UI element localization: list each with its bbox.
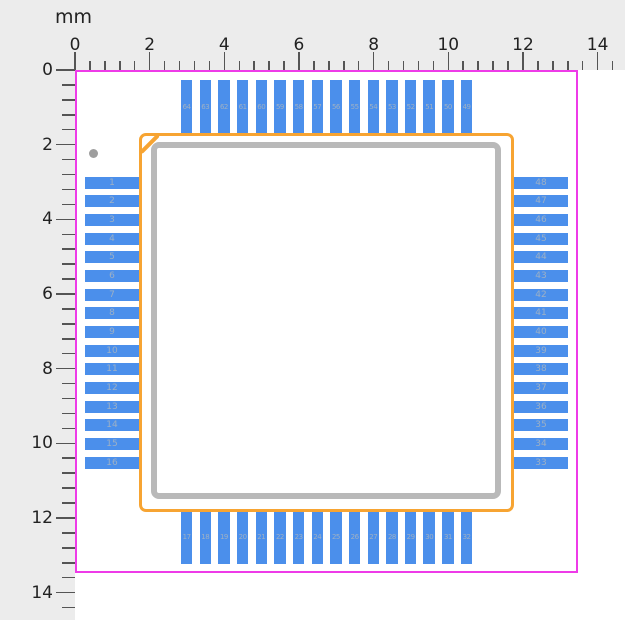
ruler-left-tick bbox=[62, 457, 75, 459]
ruler-top-number: 14 bbox=[578, 35, 618, 55]
ruler-left-number: 0 bbox=[0, 60, 53, 80]
ruler-left-tick bbox=[62, 308, 75, 310]
ruler-left-tick bbox=[62, 174, 75, 176]
ruler-top-tick bbox=[492, 61, 494, 70]
ruler-left-tick bbox=[62, 204, 75, 206]
ruler-top-tick bbox=[358, 61, 360, 70]
ruler-left-tick bbox=[56, 293, 75, 295]
ruler-top-tick bbox=[462, 61, 464, 70]
ruler-left-tick bbox=[56, 368, 75, 370]
ruler-top-tick bbox=[164, 61, 166, 70]
ruler-left-tick bbox=[62, 338, 75, 340]
ruler-left-tick bbox=[62, 234, 75, 236]
ruler-left-tick bbox=[62, 413, 75, 415]
ruler-top-tick bbox=[194, 61, 196, 70]
ruler-top-tick bbox=[313, 61, 315, 70]
ruler-left-number: 10 bbox=[0, 433, 53, 453]
ruler-left-tick bbox=[62, 159, 75, 161]
ruler-left-tick bbox=[62, 99, 75, 101]
ruler-left-tick bbox=[62, 353, 75, 355]
unit-label: mm bbox=[55, 6, 92, 28]
ruler-left-tick bbox=[62, 323, 75, 325]
footprint-preview: mm 1234567891011121314151648474645444342… bbox=[0, 0, 625, 620]
ruler-top-tick bbox=[134, 61, 136, 70]
ruler-top-number: 4 bbox=[204, 35, 244, 55]
ruler-top-tick bbox=[418, 61, 420, 70]
ruler-left-tick bbox=[62, 248, 75, 250]
ruler-left-tick bbox=[62, 84, 75, 86]
ruler-left-tick bbox=[56, 592, 75, 594]
ruler-top-tick bbox=[433, 61, 435, 70]
ruler-left-tick bbox=[62, 502, 75, 504]
ruler-left-tick bbox=[62, 263, 75, 265]
ruler-top-tick bbox=[179, 61, 181, 70]
ruler-left-number: 8 bbox=[0, 359, 53, 379]
ruler-top-tick bbox=[89, 61, 91, 70]
ruler-left-tick bbox=[62, 398, 75, 400]
ruler-left-tick bbox=[62, 428, 75, 430]
ruler-left-tick bbox=[56, 69, 75, 71]
ruler-top-tick bbox=[104, 61, 106, 70]
ruler-top-tick bbox=[567, 61, 569, 70]
ruler-top-tick bbox=[328, 61, 330, 70]
ruler-left-tick bbox=[62, 532, 75, 534]
ruler-top-number: 10 bbox=[428, 35, 468, 55]
ruler-left-tick bbox=[62, 189, 75, 191]
ruler-top-tick bbox=[537, 61, 539, 70]
ruler-left-tick bbox=[56, 517, 75, 519]
ruler-top-number: 0 bbox=[55, 35, 95, 55]
ruler-top-number: 12 bbox=[503, 35, 543, 55]
ruler-left-tick bbox=[62, 129, 75, 131]
ruler-left-tick bbox=[62, 577, 75, 579]
ruler-top-tick bbox=[388, 61, 390, 70]
ruler-left-tick bbox=[62, 547, 75, 549]
ruler-top-tick bbox=[612, 61, 614, 70]
ruler-top-tick bbox=[239, 61, 241, 70]
ruler-top-tick bbox=[552, 61, 554, 70]
ruler-left-tick bbox=[62, 278, 75, 280]
ruler-left-tick bbox=[62, 487, 75, 489]
ruler-top-tick bbox=[582, 61, 584, 70]
ruler-left-tick bbox=[62, 383, 75, 385]
ruler-left-tick bbox=[62, 114, 75, 116]
ruler-top-number: 2 bbox=[130, 35, 170, 55]
ruler-top-tick bbox=[477, 61, 479, 70]
ruler-top-number: 6 bbox=[279, 35, 319, 55]
ruler-left-number: 14 bbox=[0, 583, 53, 603]
ruler-left-tick bbox=[62, 607, 75, 609]
ruler-left-tick bbox=[56, 144, 75, 146]
ruler-top-tick bbox=[343, 61, 345, 70]
ruler-left-number: 2 bbox=[0, 135, 53, 155]
pin1-marker-dot bbox=[89, 149, 98, 158]
ruler-top-tick bbox=[403, 61, 405, 70]
courtyard-outline bbox=[75, 70, 578, 573]
ruler-top-tick bbox=[283, 61, 285, 70]
ruler-left-tick bbox=[56, 219, 75, 221]
ruler-top-tick bbox=[209, 61, 211, 70]
ruler-top-tick bbox=[268, 61, 270, 70]
ruler-left-number: 6 bbox=[0, 284, 53, 304]
ruler-left-tick bbox=[62, 472, 75, 474]
ruler-left-number: 4 bbox=[0, 209, 53, 229]
ruler-top-tick bbox=[119, 61, 121, 70]
ruler-left-number: 12 bbox=[0, 508, 53, 528]
ruler-left-tick bbox=[62, 562, 75, 564]
ruler-left-tick bbox=[56, 443, 75, 445]
ruler-top-tick bbox=[507, 61, 509, 70]
ruler-top-number: 8 bbox=[354, 35, 394, 55]
ruler-top-tick bbox=[253, 61, 255, 70]
